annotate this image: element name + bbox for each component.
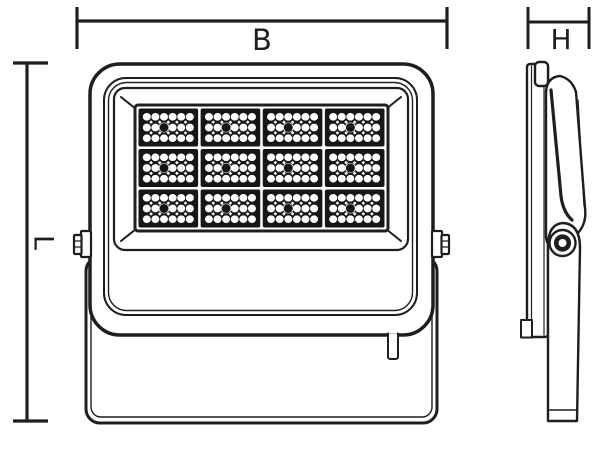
led-center-dot	[222, 164, 231, 173]
led-lens	[169, 175, 177, 183]
led-module	[201, 149, 261, 187]
led-lens	[151, 124, 159, 132]
led-module	[325, 149, 385, 187]
led-lens	[239, 175, 247, 183]
led-lens	[169, 153, 177, 161]
led-lens	[186, 164, 194, 172]
led-lens	[364, 153, 372, 161]
led-lens	[205, 205, 213, 213]
led-lens	[186, 175, 194, 183]
dimension-l-label: L	[28, 235, 59, 250]
led-lens	[222, 194, 230, 202]
led-lens	[214, 153, 222, 161]
led-lens	[338, 175, 346, 183]
led-lens	[310, 113, 318, 121]
led-center-dot	[284, 204, 293, 213]
led-lens	[177, 175, 185, 183]
led-lens	[276, 153, 284, 161]
led-lens	[301, 113, 309, 121]
led-lens	[338, 113, 346, 121]
led-lens	[372, 205, 380, 213]
led-lens	[214, 124, 222, 132]
led-lens	[346, 134, 354, 142]
led-lens	[214, 194, 222, 202]
led-lens	[222, 113, 230, 121]
led-lens	[160, 134, 168, 142]
led-lens	[143, 205, 151, 213]
led-lens	[205, 175, 213, 183]
led-module	[139, 149, 199, 187]
led-lens	[222, 215, 230, 223]
led-lens	[169, 215, 177, 223]
led-lens	[160, 175, 168, 183]
led-lens	[276, 215, 284, 223]
led-lens	[214, 134, 222, 142]
led-lens	[301, 175, 309, 183]
led-module	[263, 109, 323, 147]
led-lens	[364, 113, 372, 121]
led-lens	[372, 134, 380, 142]
led-lens	[355, 153, 363, 161]
dimension-b-label: B	[252, 23, 272, 57]
led-lens	[169, 205, 177, 213]
led-lens	[301, 205, 309, 213]
led-module	[263, 149, 323, 187]
led-lens	[364, 205, 372, 213]
led-lens	[248, 134, 256, 142]
led-lens	[284, 215, 292, 223]
led-lens	[186, 153, 194, 161]
led-lens	[310, 164, 318, 172]
led-lens	[186, 113, 194, 121]
led-lens	[293, 215, 301, 223]
led-lens	[205, 194, 213, 202]
led-lens	[143, 194, 151, 202]
led-lens	[364, 175, 372, 183]
led-lens	[293, 113, 301, 121]
led-lens	[276, 175, 284, 183]
led-lens	[355, 215, 363, 223]
led-lens	[267, 134, 275, 142]
led-lens	[186, 134, 194, 142]
led-lens	[160, 153, 168, 161]
led-lens	[222, 175, 230, 183]
led-lens	[151, 164, 159, 172]
led-lens	[355, 113, 363, 121]
led-lens	[355, 205, 363, 213]
led-lens	[267, 153, 275, 161]
led-lens	[364, 194, 372, 202]
led-lens	[293, 153, 301, 161]
led-lens	[231, 134, 239, 142]
led-center-dot	[346, 204, 355, 213]
led-lens	[355, 134, 363, 142]
led-lens	[364, 134, 372, 142]
led-lens	[284, 134, 292, 142]
led-lens	[364, 215, 372, 223]
led-lens	[293, 124, 301, 132]
led-module	[325, 109, 385, 147]
led-lens	[329, 164, 337, 172]
led-lens	[338, 153, 346, 161]
led-lens	[301, 194, 309, 202]
led-center-dot	[160, 123, 169, 132]
led-lens	[248, 153, 256, 161]
led-lens	[205, 164, 213, 172]
led-lens	[205, 113, 213, 121]
led-lens	[293, 205, 301, 213]
led-center-dot	[284, 123, 293, 132]
led-lens	[143, 153, 151, 161]
led-lens	[284, 153, 292, 161]
led-lens	[284, 113, 292, 121]
led-lens	[239, 164, 247, 172]
led-lens	[267, 194, 275, 202]
dimension-h-label: H	[550, 23, 571, 56]
led-lens	[205, 215, 213, 223]
led-lens	[177, 153, 185, 161]
led-lens	[346, 194, 354, 202]
led-lens	[169, 134, 177, 142]
led-lens	[151, 134, 159, 142]
led-lens	[267, 124, 275, 132]
led-lens	[301, 134, 309, 142]
led-lens	[276, 194, 284, 202]
drain-peg	[388, 334, 398, 360]
led-lens	[338, 194, 346, 202]
led-lens	[276, 124, 284, 132]
led-lens	[372, 113, 380, 121]
floodlight-dimension-drawing: B H L	[0, 0, 609, 449]
led-center-dot	[222, 204, 231, 213]
led-lens	[372, 124, 380, 132]
led-lens	[231, 153, 239, 161]
led-lens	[169, 113, 177, 121]
led-lens	[160, 215, 168, 223]
led-lens	[364, 164, 372, 172]
led-lens	[293, 134, 301, 142]
led-lens	[214, 215, 222, 223]
led-lens	[151, 113, 159, 121]
led-lens	[248, 164, 256, 172]
led-center-dot	[346, 164, 355, 173]
led-lens	[231, 205, 239, 213]
led-lens	[151, 194, 159, 202]
side-top-cap	[535, 62, 548, 86]
led-lens	[310, 205, 318, 213]
led-module	[201, 190, 261, 228]
led-lens	[329, 205, 337, 213]
led-lens	[338, 134, 346, 142]
led-lens	[222, 134, 230, 142]
led-lens	[143, 134, 151, 142]
led-lens	[214, 175, 222, 183]
led-lens	[355, 175, 363, 183]
right-bolt-head	[442, 235, 450, 254]
led-lens	[231, 113, 239, 121]
led-lens	[346, 113, 354, 121]
led-lens	[301, 153, 309, 161]
led-lens	[248, 113, 256, 121]
led-lens	[329, 215, 337, 223]
right-mounting-bolt	[432, 231, 449, 257]
led-lens	[276, 205, 284, 213]
led-lens	[231, 175, 239, 183]
led-lens	[355, 194, 363, 202]
led-lens	[293, 194, 301, 202]
led-module	[139, 190, 199, 228]
led-lens	[346, 153, 354, 161]
led-lens	[143, 124, 151, 132]
led-lens	[329, 124, 337, 132]
led-lens	[267, 205, 275, 213]
led-lens	[267, 113, 275, 121]
led-lens	[355, 124, 363, 132]
led-lens	[169, 164, 177, 172]
led-lens	[248, 205, 256, 213]
led-lens	[239, 134, 247, 142]
led-center-dot	[346, 123, 355, 132]
led-lens	[310, 175, 318, 183]
led-lens	[267, 215, 275, 223]
led-lens	[329, 113, 337, 121]
floodlight-side-view	[521, 62, 585, 421]
led-lens	[177, 194, 185, 202]
led-lens	[151, 215, 159, 223]
led-lens	[372, 194, 380, 202]
led-center-dot	[160, 204, 169, 213]
led-lens	[329, 134, 337, 142]
led-lens	[214, 113, 222, 121]
led-lens	[372, 153, 380, 161]
led-lens	[301, 164, 309, 172]
led-center-dot	[160, 164, 169, 173]
led-lens	[338, 124, 346, 132]
led-lens	[222, 153, 230, 161]
led-lens	[338, 164, 346, 172]
led-lens	[284, 175, 292, 183]
led-lens	[186, 215, 194, 223]
led-lens	[276, 164, 284, 172]
led-lens	[346, 175, 354, 183]
led-lens	[276, 134, 284, 142]
led-module	[263, 190, 323, 228]
led-lens	[239, 113, 247, 121]
led-lens	[372, 215, 380, 223]
led-lens	[160, 194, 168, 202]
led-lens	[177, 134, 185, 142]
led-center-dot	[222, 123, 231, 132]
led-lens	[267, 164, 275, 172]
led-lens	[214, 205, 222, 213]
led-lens	[169, 194, 177, 202]
led-lens	[169, 124, 177, 132]
led-lens	[372, 175, 380, 183]
led-lens	[301, 215, 309, 223]
led-lens	[248, 124, 256, 132]
led-lens	[177, 205, 185, 213]
led-lens	[372, 164, 380, 172]
led-lens	[329, 175, 337, 183]
led-lens	[205, 134, 213, 142]
led-lens	[239, 205, 247, 213]
led-lens	[310, 153, 318, 161]
led-lens	[301, 124, 309, 132]
led-lens	[310, 134, 318, 142]
led-lens	[177, 113, 185, 121]
led-lens	[284, 194, 292, 202]
led-lens	[239, 124, 247, 132]
led-lens	[143, 175, 151, 183]
led-lens	[310, 194, 318, 202]
led-lens	[151, 205, 159, 213]
side-plate-step	[521, 320, 532, 338]
led-lens	[231, 215, 239, 223]
led-lens	[338, 205, 346, 213]
led-lens	[205, 124, 213, 132]
led-lens	[177, 124, 185, 132]
led-center-dot	[284, 164, 293, 173]
led-lens	[143, 164, 151, 172]
led-lens	[239, 153, 247, 161]
led-lens	[143, 113, 151, 121]
led-lens	[239, 215, 247, 223]
led-module	[325, 190, 385, 228]
led-lens	[310, 124, 318, 132]
led-lens	[177, 215, 185, 223]
led-lens	[177, 164, 185, 172]
led-lens	[248, 175, 256, 183]
led-lens	[160, 113, 168, 121]
led-lens	[276, 113, 284, 121]
led-lens	[231, 194, 239, 202]
led-lens	[248, 215, 256, 223]
led-lens	[151, 175, 159, 183]
led-lens	[239, 194, 247, 202]
led-lens	[205, 153, 213, 161]
left-mounting-bolt	[74, 231, 91, 257]
led-lens	[346, 215, 354, 223]
led-lens	[293, 164, 301, 172]
led-lens	[143, 215, 151, 223]
led-lens	[186, 205, 194, 213]
led-lens	[338, 215, 346, 223]
led-lens	[267, 175, 275, 183]
side-pivot-bolt	[556, 237, 569, 250]
led-lens	[231, 124, 239, 132]
led-lens	[310, 215, 318, 223]
led-lens	[329, 194, 337, 202]
led-lens	[151, 153, 159, 161]
led-lens	[329, 153, 337, 161]
technical-drawing-canvas: B H L	[0, 0, 609, 449]
left-bolt-head	[74, 235, 82, 254]
led-lens	[186, 194, 194, 202]
floodlight-front-view	[74, 64, 449, 423]
led-module	[139, 109, 199, 147]
led-lens	[214, 164, 222, 172]
led-lens	[231, 164, 239, 172]
led-lens	[248, 194, 256, 202]
led-lens	[293, 175, 301, 183]
led-module	[201, 109, 261, 147]
led-lens	[355, 164, 363, 172]
led-lens	[186, 124, 194, 132]
led-lens	[364, 124, 372, 132]
